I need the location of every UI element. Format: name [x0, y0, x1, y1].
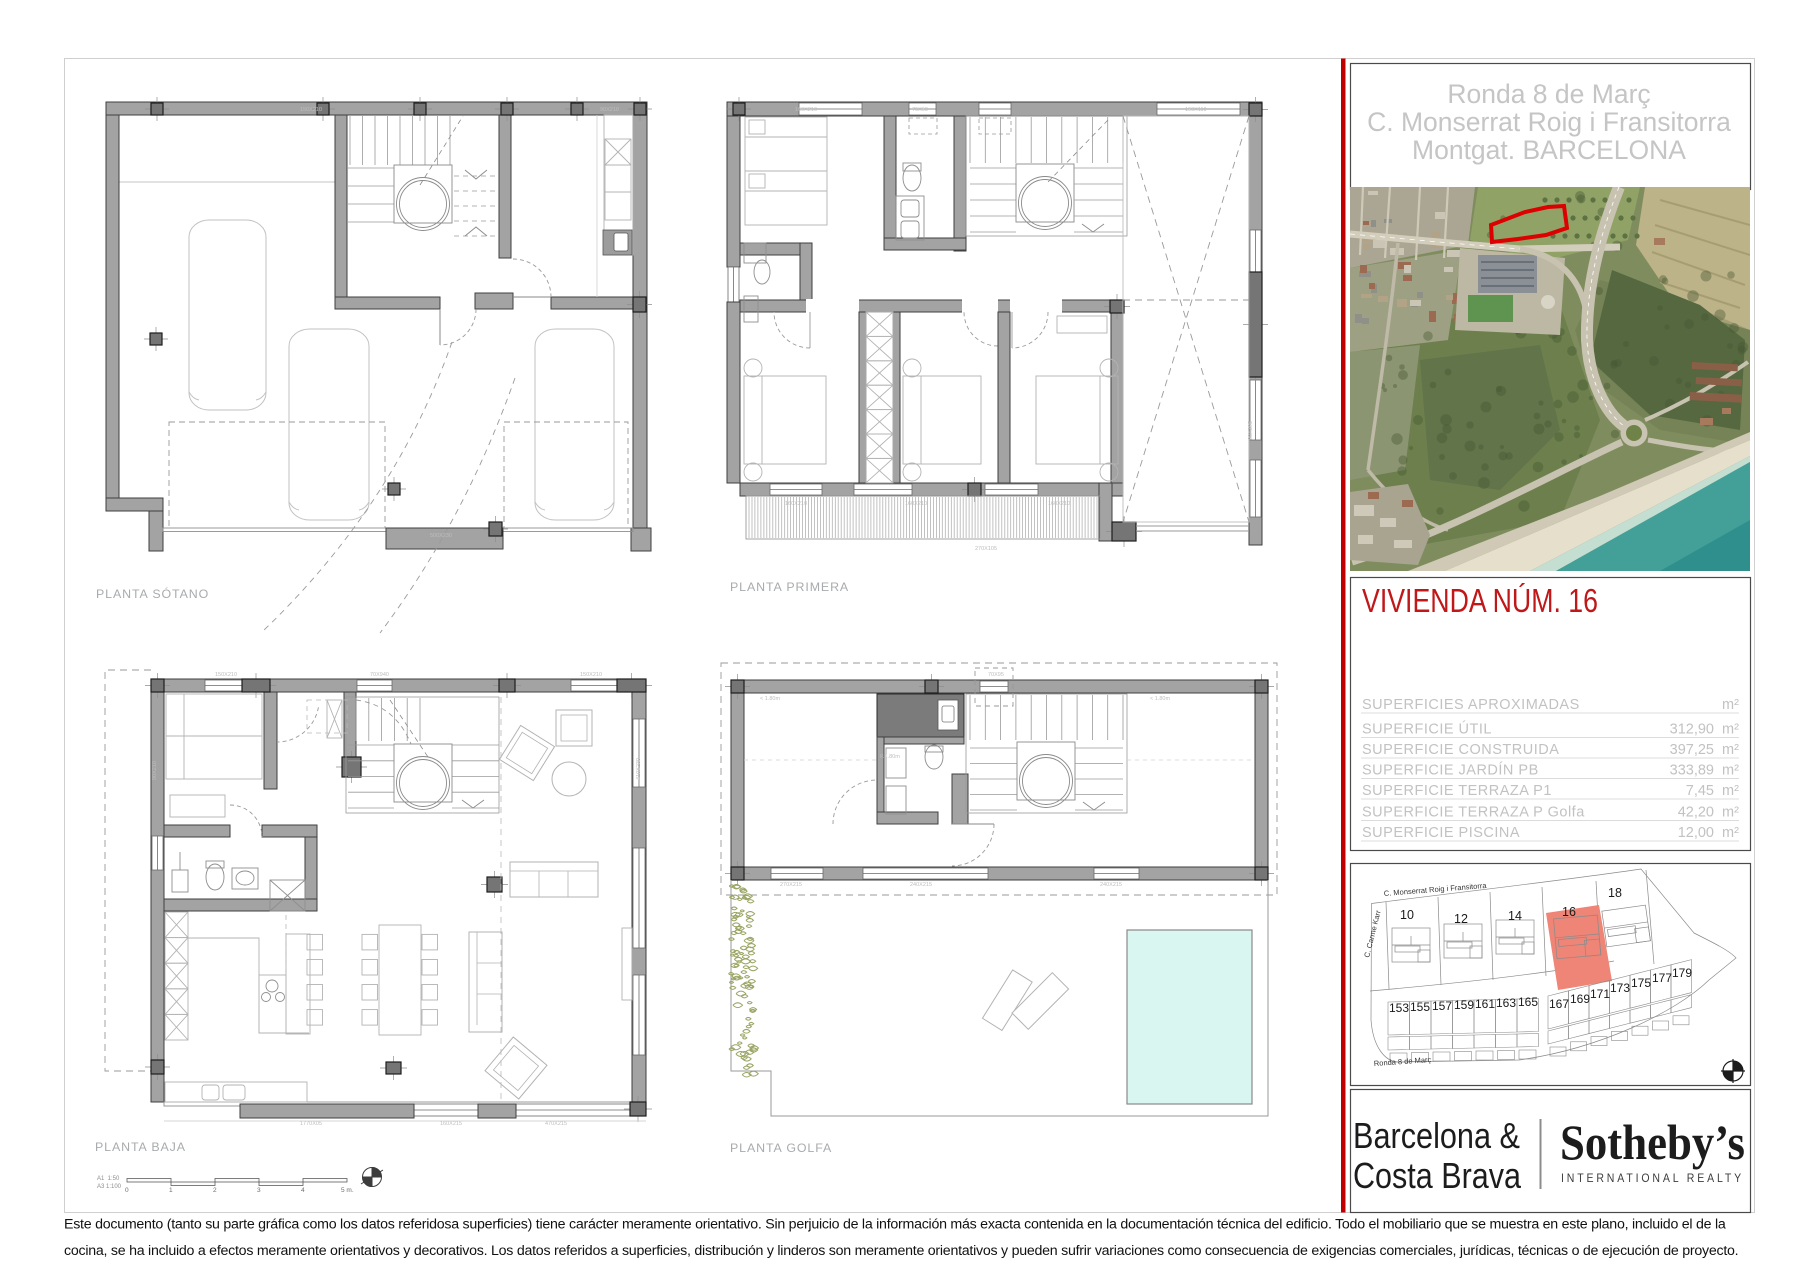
svg-text:160X210: 160X210 — [795, 107, 817, 113]
svg-text:160X215: 160X215 — [440, 1121, 462, 1127]
svg-text:3: 3 — [257, 1187, 261, 1194]
svg-text:cocina, se ha incluido a efect: cocina, se ha incluido a efectos meramen… — [64, 1243, 1738, 1259]
svg-text:160X210: 160X210 — [785, 501, 807, 507]
svg-text:m²: m² — [1722, 697, 1739, 713]
svg-text:SUPERFICIE CONSTRUIDA: SUPERFICIE CONSTRUIDA — [1362, 742, 1559, 758]
svg-text:90X210: 90X210 — [152, 761, 158, 780]
svg-text:SUPERFICIES APROXIMADAS: SUPERFICIES APROXIMADAS — [1362, 697, 1580, 713]
svg-text:70X60: 70X60 — [912, 107, 928, 113]
svg-text:167: 167 — [1549, 997, 1569, 1011]
svg-text:160X210: 160X210 — [1048, 501, 1070, 507]
svg-text:16: 16 — [1562, 905, 1576, 919]
svg-text:70X95: 70X95 — [988, 672, 1004, 678]
svg-text:10: 10 — [1400, 908, 1414, 922]
svg-text:SUPERFICIE ÚTIL: SUPERFICIE ÚTIL — [1362, 721, 1492, 738]
svg-text:C. Monserrat Roig i Fransitorr: C. Monserrat Roig i Fransitorra — [1367, 107, 1731, 137]
svg-text:163: 163 — [1496, 996, 1516, 1010]
svg-text:240X215: 240X215 — [1100, 882, 1122, 888]
svg-text:< 1.80m: < 1.80m — [1150, 696, 1170, 702]
svg-text:PLANTA GOLFA: PLANTA GOLFA — [730, 1141, 832, 1155]
svg-text:PLANTA PRIMERA: PLANTA PRIMERA — [730, 580, 849, 594]
svg-text:153: 153 — [1389, 1001, 1409, 1015]
svg-text:70X940: 70X940 — [370, 672, 389, 678]
svg-text:7,45: 7,45 — [1686, 783, 1714, 799]
svg-text:177: 177 — [1652, 971, 1672, 985]
svg-text:5 m.: 5 m. — [341, 1187, 354, 1194]
svg-text:P.1.80m: P.1.80m — [880, 754, 900, 760]
svg-text:PLANTA BAJA: PLANTA BAJA — [95, 1140, 186, 1154]
svg-text:333,89: 333,89 — [1670, 763, 1714, 779]
svg-text:SUPERFICIE JARDÍN PB: SUPERFICIE JARDÍN PB — [1362, 762, 1539, 779]
svg-text:m²: m² — [1722, 805, 1739, 821]
svg-text:157: 157 — [1432, 999, 1452, 1013]
svg-text:A3 1:100: A3 1:100 — [97, 1184, 122, 1190]
svg-text:150X210: 150X210 — [580, 672, 602, 678]
svg-text:12,00: 12,00 — [1678, 825, 1714, 841]
svg-text:m²: m² — [1722, 825, 1739, 841]
svg-text:PLANTA SÓTANO: PLANTA SÓTANO — [96, 586, 209, 601]
svg-text:0: 0 — [125, 1187, 129, 1194]
svg-text:159: 159 — [1454, 998, 1474, 1012]
svg-text:312,90: 312,90 — [1670, 722, 1714, 738]
svg-text:190X110: 190X110 — [1185, 107, 1207, 113]
svg-text:4: 4 — [301, 1187, 305, 1194]
svg-text:470X215: 470X215 — [545, 1121, 567, 1127]
svg-text:m²: m² — [1722, 722, 1739, 738]
svg-text:SUPERFICIE TERRAZA P1: SUPERFICIE TERRAZA P1 — [1362, 783, 1552, 799]
svg-text:18: 18 — [1608, 886, 1622, 900]
svg-text:90X210: 90X210 — [600, 107, 619, 113]
svg-text:173: 173 — [1610, 981, 1630, 995]
svg-text:150X210: 150X210 — [215, 672, 237, 678]
svg-text:1770X05: 1770X05 — [300, 1121, 322, 1127]
svg-text:90X395: 90X395 — [1248, 421, 1254, 440]
svg-text:397,25: 397,25 — [1670, 742, 1714, 758]
svg-text:14: 14 — [1508, 909, 1522, 923]
svg-text:Costa Brava: Costa Brava — [1353, 1155, 1522, 1196]
svg-text:A1 1:50: A1 1:50 — [97, 1176, 120, 1182]
svg-text:VIVIENDA NÚM. 16: VIVIENDA NÚM. 16 — [1362, 582, 1598, 620]
svg-text:240X215: 240X215 — [910, 882, 932, 888]
svg-text:161: 161 — [1475, 997, 1495, 1011]
svg-text:2: 2 — [213, 1187, 217, 1194]
svg-text:INTERNATIONAL REALTY: INTERNATIONAL REALTY — [1561, 1173, 1744, 1185]
svg-text:270X105: 270X105 — [975, 546, 997, 552]
svg-text:Sotheby’s: Sotheby’s — [1560, 1114, 1745, 1170]
svg-text:270X215: 270X215 — [780, 882, 802, 888]
svg-text:500X230: 500X230 — [430, 533, 452, 539]
svg-text:1: 1 — [169, 1187, 173, 1194]
svg-text:m²: m² — [1722, 783, 1739, 799]
svg-text:SUPERFICIE PISCINA: SUPERFICIE PISCINA — [1362, 825, 1520, 841]
svg-text:Barcelona &: Barcelona & — [1353, 1115, 1520, 1156]
svg-text:12: 12 — [1454, 912, 1468, 926]
svg-text:m²: m² — [1722, 742, 1739, 758]
svg-text:179: 179 — [1672, 966, 1692, 980]
svg-text:< 1.80m: < 1.80m — [760, 696, 780, 702]
svg-text:171: 171 — [1590, 987, 1610, 1001]
svg-text:175: 175 — [1631, 976, 1651, 990]
svg-text:155: 155 — [1410, 1000, 1430, 1014]
svg-text:Este documento (tanto su parte: Este documento (tanto su parte gráfica c… — [64, 1217, 1726, 1233]
svg-text:SUPERFICIE TERRAZA P Golfa: SUPERFICIE TERRAZA P Golfa — [1362, 805, 1585, 821]
svg-text:Ronda 8 de Març: Ronda 8 de Març — [1447, 79, 1650, 109]
svg-text:m²: m² — [1722, 763, 1739, 779]
svg-text:165: 165 — [1518, 995, 1538, 1009]
svg-text:169: 169 — [1570, 992, 1590, 1006]
svg-text:410X230: 410X230 — [636, 758, 642, 780]
svg-text:42,20: 42,20 — [1678, 805, 1714, 821]
svg-text:150X210: 150X210 — [300, 107, 322, 113]
svg-text:Montgat. BARCELONA: Montgat. BARCELONA — [1412, 135, 1686, 165]
svg-text:160X210: 160X210 — [905, 501, 927, 507]
